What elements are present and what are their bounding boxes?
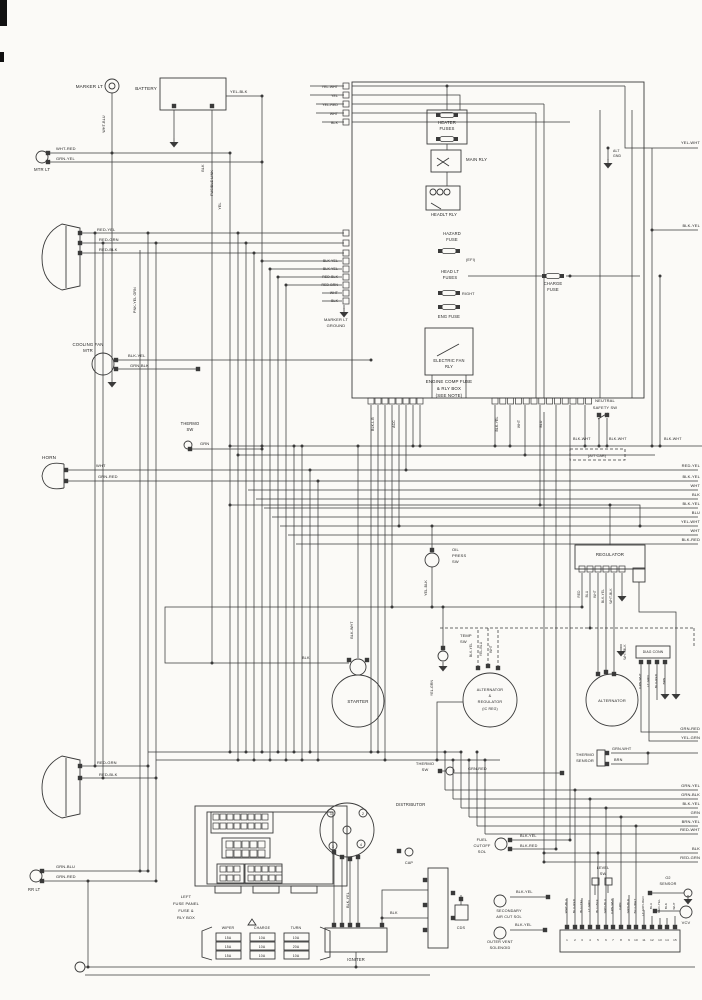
label: 1 (566, 938, 568, 942)
label: & RLY BOX (437, 386, 461, 391)
label: MAIN RLY (466, 157, 487, 162)
label: 9 (628, 938, 630, 942)
wiring-diagram-page: MARKER LTBATTERYYEL-BLKWHT-REDGRN-YELMTR… (0, 0, 702, 1000)
label: BLU (692, 510, 700, 515)
label-vertical: BLK (664, 903, 668, 909)
label: RED-BLK (99, 772, 118, 777)
label-vertical: WHT (517, 420, 521, 428)
label: 10A (259, 945, 266, 949)
terminal (347, 658, 351, 662)
label-vertical: WHT-BLU (564, 899, 568, 914)
terminal (365, 658, 369, 662)
junction-dot (647, 752, 650, 755)
junction-dot (607, 147, 610, 150)
terminal (78, 764, 82, 768)
label-vertical: GRN (618, 902, 622, 909)
label: 10 (634, 938, 638, 942)
label-vertical: FUSIBLE LINK (210, 170, 214, 196)
label: CAP (405, 861, 414, 865)
terminal (486, 664, 490, 668)
label: CHARGE (254, 926, 271, 930)
junction-dot (659, 445, 662, 448)
terminal (430, 548, 434, 552)
label: GRN-RED (468, 767, 487, 771)
label: 2 (362, 812, 364, 816)
terminal (663, 660, 667, 664)
terminal (451, 891, 455, 895)
junction-dot (584, 445, 587, 448)
label: RLY (445, 364, 453, 369)
label: MARKER LT (76, 84, 103, 89)
label: RED-GRN (99, 237, 119, 242)
label: BLK-YEL (682, 501, 700, 506)
fuse-pin (456, 291, 460, 295)
label-vertical: BLK-WHT (350, 621, 354, 639)
label: BLK (692, 492, 700, 497)
terminal (565, 925, 569, 929)
junction-dot (245, 242, 248, 245)
label: GROUND (327, 323, 346, 328)
label: 10A (259, 936, 266, 940)
junction-dot (229, 504, 232, 507)
label: & (489, 694, 492, 698)
label-vertical: WHT (489, 645, 493, 653)
paper (0, 0, 702, 1000)
terminal (543, 928, 547, 932)
junction-dot (468, 759, 471, 762)
terminal (665, 925, 669, 929)
terminal (441, 646, 445, 650)
label: SAFETY SW (593, 405, 617, 410)
label-vertical: LT GRN (646, 675, 650, 687)
label: HEAD LT (441, 269, 459, 274)
terminal (114, 358, 118, 362)
label: (IC REG) (482, 707, 498, 711)
label: THERMO (416, 761, 434, 766)
terminal (597, 413, 601, 417)
junction-dot (569, 275, 572, 278)
label-vertical: BLU-RED (654, 673, 658, 688)
junction-dot (446, 85, 449, 88)
junction-dot (261, 448, 264, 451)
junction-dot (597, 852, 600, 855)
label: SOLENOID (490, 946, 511, 950)
label: RED-BRN (322, 283, 339, 287)
label: 6 (605, 938, 607, 942)
terminal (476, 666, 480, 670)
label: GRN-YEL (56, 156, 75, 161)
label: CHARGE (544, 281, 563, 286)
label: GRN-RED (98, 474, 118, 479)
label: GRN (691, 810, 700, 815)
junction-dot (444, 751, 447, 754)
label: DIAG CONN (643, 650, 664, 654)
fuse-pin (560, 274, 564, 278)
junction-dot (524, 454, 527, 457)
terminal (655, 660, 659, 664)
label: RED-BLK (322, 275, 338, 279)
junction-dot (269, 759, 272, 762)
label-vertical: BRN (662, 678, 666, 685)
junction-dot (574, 789, 577, 792)
terminal (78, 231, 82, 235)
label: RR LT (28, 887, 41, 892)
label: THERMO (181, 421, 200, 426)
junction-dot (452, 759, 455, 762)
terminal (114, 367, 118, 371)
terminal (397, 849, 401, 853)
junction-dot (147, 870, 150, 873)
label: OIL (452, 547, 460, 552)
label: BLK-YEL (515, 923, 532, 927)
terminal (673, 925, 677, 929)
fuse-pin (438, 249, 442, 253)
label: BLK-YEL (323, 267, 338, 271)
label: MTR (83, 348, 93, 353)
label: THERMO (576, 752, 594, 757)
label: HEADLT RLY (431, 212, 457, 217)
terminal (423, 928, 427, 932)
junction-dot (87, 966, 90, 969)
junction-dot (301, 445, 304, 448)
junction-dot (277, 276, 280, 279)
label: RED-BLK (99, 247, 118, 252)
label: 12 (650, 938, 654, 942)
label: FUSE PANEL (173, 901, 200, 906)
label: STARTER (347, 699, 368, 704)
terminal (658, 925, 662, 929)
terminal (332, 850, 336, 854)
junction-dot (139, 870, 142, 873)
label: CUTOFF (473, 843, 490, 848)
label: YEL-RED (322, 103, 338, 107)
label-vertical: BLU (649, 903, 653, 909)
junction-dot (237, 232, 240, 235)
fuse-pin (454, 113, 458, 117)
label: SENSOR (576, 758, 594, 763)
junction-dot (261, 445, 264, 448)
label-vertical: BLU (585, 590, 589, 597)
label: (EFI) (466, 258, 476, 262)
label: BLK (302, 656, 310, 660)
junction-dot (442, 606, 445, 609)
label: BLK-YEL (682, 801, 700, 806)
junction-dot (620, 816, 623, 819)
junction-dot (317, 759, 320, 762)
label: REGULATOR (596, 552, 624, 557)
junction-dot (293, 445, 296, 448)
label: RLY BOX (177, 915, 195, 920)
label: 20A (293, 945, 300, 949)
label: GRN-BLK (130, 363, 149, 368)
label: BLK-RED (682, 537, 700, 542)
label: YEL-WHT (681, 519, 700, 524)
label: WHT (690, 483, 700, 488)
junction-dot (476, 751, 479, 754)
label: BLK-YEL (520, 834, 537, 838)
label: ALTERNATOR (598, 698, 626, 703)
terminal (596, 672, 600, 676)
label: 8 (620, 938, 622, 942)
label: 3 (332, 845, 334, 849)
terminal (210, 104, 214, 108)
junction-dot (285, 759, 288, 762)
label: 14 (665, 938, 669, 942)
terminal (64, 468, 68, 472)
junction-dot (253, 252, 256, 255)
label: RED-YEL (97, 227, 116, 232)
label-vertical: WHT-BLU (102, 115, 106, 132)
label: SOL (478, 849, 487, 854)
terminal (627, 925, 631, 929)
terminal (508, 838, 512, 842)
label: BLK-WHT (573, 437, 591, 441)
label: BLK (331, 299, 338, 303)
label-vertical: WHT-BLK (623, 644, 627, 660)
label: BLK (390, 911, 398, 915)
terminal (605, 762, 609, 766)
label: GRN-BLK (681, 792, 700, 797)
junction-dot (494, 445, 497, 448)
junction-dot (309, 469, 312, 472)
junction-dot (405, 469, 408, 472)
label: YEL-WHT (681, 140, 700, 145)
junction-dot (419, 445, 422, 448)
label-vertical: BLK-L.B (371, 417, 375, 431)
label-vertical: RED (577, 590, 581, 598)
junction-dot (543, 852, 546, 855)
label: O2 (665, 876, 670, 880)
junction-dot (355, 966, 358, 969)
junction-dot (229, 445, 232, 448)
junction-dot (261, 161, 264, 164)
junction-dot (261, 260, 264, 263)
terminal (648, 891, 652, 895)
label-vertical: GRN-BLU (603, 899, 607, 914)
junction-dot (277, 751, 280, 754)
junction-dot (543, 861, 546, 864)
junction-dot (412, 445, 415, 448)
terminal (78, 251, 82, 255)
label: (A/T CAR) (588, 454, 606, 458)
label: WHT (330, 291, 338, 295)
junction-dot (384, 759, 387, 762)
scan-artifact (0, 52, 4, 62)
label-vertical: RED-YEL (657, 899, 661, 913)
junction-dot (317, 480, 320, 483)
junction-dot (589, 627, 592, 630)
label: DISTRIBUTOR (396, 802, 425, 807)
label-vertical: YEL-BLU (479, 641, 483, 656)
terminal (611, 925, 615, 929)
terminal (496, 666, 500, 670)
label-vertical: WHT-BLK (609, 588, 613, 604)
fuse-pin (436, 137, 440, 141)
label: SW (452, 559, 459, 564)
label: SENSOR (660, 882, 677, 886)
label: GRN-BLU (56, 864, 75, 869)
label: BLK-WHT (609, 437, 627, 441)
junction-dot (261, 95, 264, 98)
label: (SEE NOTE) (436, 393, 463, 398)
label-vertical: YEL-BLK (424, 580, 428, 596)
terminal (332, 923, 336, 927)
terminal (438, 769, 442, 773)
label: BLK-YEL (682, 223, 700, 228)
label: RED-YEL (682, 463, 701, 468)
label: SW (460, 639, 467, 644)
label: YEL-GRN (681, 735, 700, 740)
label-vertical: BLK-YEL (469, 643, 473, 657)
junction-dot (659, 275, 662, 278)
label: ALTERNATOR (477, 688, 504, 692)
terminal (619, 925, 623, 929)
label: HEATER (438, 120, 456, 125)
terminal (64, 479, 68, 483)
terminal (650, 925, 654, 929)
terminal (356, 923, 360, 927)
junction-dot (581, 606, 584, 609)
junction-dot (609, 504, 612, 507)
wiring-diagram: MARKER LTBATTERYYEL-BLKWHT-REDGRN-YELMTR… (0, 0, 702, 1000)
terminal (560, 771, 564, 775)
label: WHT (690, 528, 700, 533)
junction-dot (436, 759, 439, 762)
label: FUSES (443, 275, 458, 280)
label: BLK-YEL (323, 259, 338, 263)
junction-dot (543, 275, 546, 278)
junction-dot (111, 152, 114, 155)
label: FUSE & (178, 908, 194, 913)
label: ALT (613, 149, 620, 153)
label: BRN (614, 758, 623, 762)
label: FUSES (439, 126, 454, 131)
label: SW (422, 767, 429, 772)
terminal (612, 672, 616, 676)
terminal (459, 897, 463, 901)
junction-dot (229, 751, 232, 754)
junction-dot (598, 445, 601, 448)
terminal (596, 925, 600, 929)
label: ENGINE COMP FUSE (426, 379, 472, 384)
junction-dot (555, 848, 558, 851)
terminal (605, 751, 609, 755)
terminal (340, 855, 344, 859)
label-vertical: YEL-GRN (430, 680, 434, 697)
label-vertical: BLK-YEL (346, 892, 350, 908)
junction-dot (147, 232, 150, 235)
terminal (78, 776, 82, 780)
fuse-pin (454, 137, 458, 141)
terminal (604, 925, 608, 929)
terminal (423, 903, 427, 907)
junction-dot (237, 759, 240, 762)
junction-dot (269, 268, 272, 271)
junction-dot (357, 445, 360, 448)
terminal (40, 869, 44, 873)
junction-dot (261, 751, 264, 754)
label-vertical: WHT (593, 590, 597, 598)
label: 10A (293, 936, 300, 940)
terminal (634, 925, 638, 929)
junction-dot (229, 152, 232, 155)
terminal (639, 660, 643, 664)
junction-dot (484, 759, 487, 762)
fuse-pin (456, 305, 460, 309)
label: 3 (581, 938, 583, 942)
label-vertical: BLU (539, 420, 543, 427)
label: FUSE (547, 287, 559, 292)
junction-dot (377, 751, 380, 754)
junction-dot (398, 525, 401, 528)
junction-dot (253, 759, 256, 762)
junction-dot (391, 606, 394, 609)
junction-dot (293, 751, 296, 754)
label: 2 (574, 938, 576, 942)
label: 15 (673, 938, 677, 942)
label: 13 (658, 938, 662, 942)
label: TURN (291, 926, 302, 930)
label-vertical: WHT (672, 902, 676, 909)
label-vertical: BLU-BLK (595, 899, 599, 913)
label: COOLING FAN (72, 342, 103, 347)
label-vertical: BLK (201, 164, 205, 172)
terminal (647, 660, 651, 664)
junction-dot (569, 839, 572, 842)
label-vertical: LT GRN (587, 900, 591, 912)
terminal (423, 878, 427, 882)
label: BLK-WHT (664, 437, 682, 441)
label: BLK (692, 846, 700, 851)
junction-dot (589, 798, 592, 801)
label: OUTER VENT (487, 940, 514, 944)
fuse-pin (436, 113, 440, 117)
label: RED-GRN (97, 760, 117, 765)
terminal (451, 916, 455, 920)
junction-dot (285, 284, 288, 287)
label: AIR CUT SOL (496, 915, 521, 919)
label-vertical: YEL (218, 202, 222, 209)
label: PRESS (452, 553, 466, 558)
label: HAZARD (443, 231, 461, 236)
junction-dot (509, 445, 512, 448)
junction-dot (309, 751, 312, 754)
label: LEFT (181, 894, 192, 899)
label: RED-WHT (680, 827, 700, 832)
label: GRN (200, 441, 209, 446)
junction-dot (431, 525, 434, 528)
label: RED-GRN (680, 855, 700, 860)
label: GRN-YEL (681, 783, 700, 788)
label: RIGHT (462, 292, 475, 296)
label-vertical: BLK-YEL (601, 589, 605, 603)
label: 5 (597, 938, 599, 942)
label-vertical: GRN-BLK (626, 899, 630, 913)
label-vertical: BLU-WHT (633, 899, 637, 914)
label: WHT (96, 463, 106, 468)
label: FUSE (446, 237, 458, 242)
terminal (196, 367, 200, 371)
label: ELECTRIC FAN (433, 358, 464, 363)
terminal (642, 925, 646, 929)
label: REGULATOR (478, 700, 503, 704)
label: MARKER LT (324, 317, 348, 322)
label: BLK-YEL (128, 353, 146, 358)
junction-dot (211, 662, 214, 665)
label: WIPER (222, 926, 235, 930)
junction-dot (431, 606, 434, 609)
label: NEUTRAL (595, 398, 615, 403)
